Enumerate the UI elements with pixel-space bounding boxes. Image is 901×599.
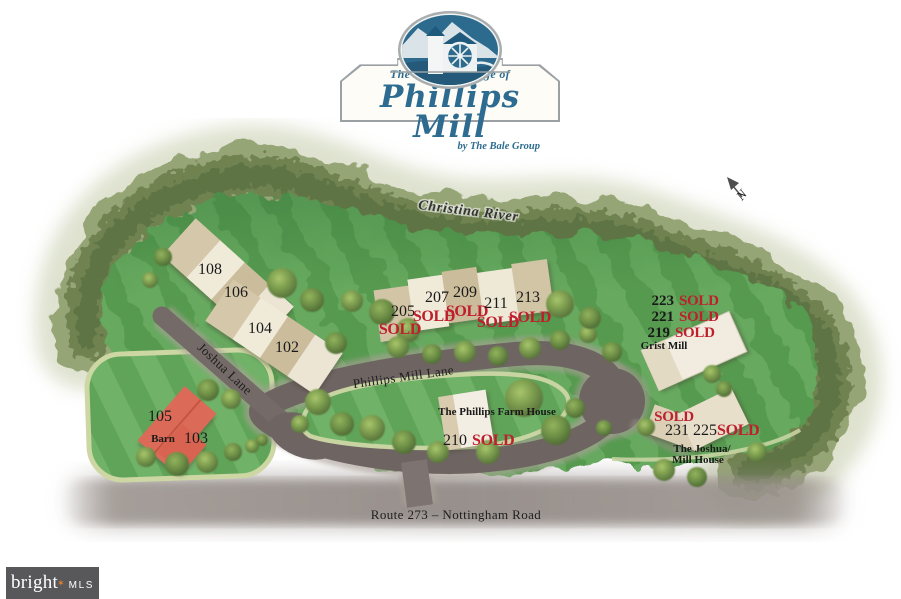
tree bbox=[341, 290, 363, 312]
tree bbox=[602, 342, 622, 362]
lot-219-label: 219 bbox=[648, 325, 671, 341]
tree bbox=[488, 346, 508, 366]
tree bbox=[454, 341, 476, 363]
lot-205-label: 205 bbox=[391, 303, 415, 320]
brightmls-watermark: bright✶ MLS bbox=[6, 567, 99, 599]
logo: The Historic Village of Phillips Mill by… bbox=[340, 6, 560, 124]
lot-213-sold-label: SOLD bbox=[509, 309, 551, 326]
tree bbox=[305, 389, 331, 415]
tree bbox=[330, 412, 354, 436]
tree bbox=[196, 451, 218, 473]
tree bbox=[747, 442, 767, 462]
lot-213-label: 213 bbox=[516, 289, 540, 306]
tree bbox=[267, 268, 297, 298]
tree bbox=[165, 452, 189, 476]
lot-104-label: 104 bbox=[248, 320, 272, 337]
lot-211-label: 211 bbox=[484, 295, 507, 312]
tree bbox=[703, 365, 721, 383]
star-icon: ✶ bbox=[57, 578, 65, 589]
lot-231-label: 231 bbox=[665, 422, 689, 439]
tree bbox=[716, 381, 732, 397]
tree bbox=[687, 467, 707, 487]
barn-label: Barn bbox=[151, 433, 175, 445]
lot-225-sold-label: SOLD bbox=[717, 422, 759, 439]
tree bbox=[550, 330, 570, 350]
grist-mill-label: Grist Mill bbox=[641, 340, 688, 352]
tree bbox=[359, 415, 385, 441]
tree bbox=[541, 415, 571, 445]
tree bbox=[136, 447, 156, 467]
mill-emblem-icon bbox=[390, 8, 510, 94]
lot-102-label: 102 bbox=[275, 339, 299, 356]
lot-210-sold-label: SOLD bbox=[472, 432, 514, 449]
site-plan-page: Christina River N 108 106 104 102 205 SO… bbox=[0, 0, 901, 599]
tree bbox=[422, 344, 442, 364]
lot-221-label: 221 bbox=[652, 309, 675, 325]
lot-223-sold-label: SOLD bbox=[679, 293, 719, 309]
entrance-road bbox=[414, 461, 420, 506]
north-arrow-icon: N bbox=[727, 177, 751, 204]
tree bbox=[221, 389, 241, 409]
tree bbox=[519, 337, 541, 359]
tree bbox=[256, 434, 268, 446]
lot-225-label: 225 bbox=[693, 422, 717, 439]
lot-106-label: 106 bbox=[224, 284, 248, 301]
lot-209-label: 209 bbox=[453, 284, 477, 301]
tree bbox=[197, 379, 219, 401]
tree bbox=[596, 420, 612, 436]
lot-223-label: 223 bbox=[652, 293, 675, 309]
tree bbox=[142, 272, 158, 288]
lot-103-label: 103 bbox=[184, 430, 208, 447]
joshua-mill-house-label-line2: Mill House bbox=[672, 454, 724, 466]
lot-210-label: 210 bbox=[443, 432, 467, 449]
brightmls-brand: bright bbox=[11, 572, 58, 594]
tree bbox=[154, 248, 172, 266]
farm-house-label: The Phillips Farm House bbox=[438, 406, 556, 418]
tree bbox=[224, 443, 242, 461]
tree bbox=[325, 332, 347, 354]
tree bbox=[291, 415, 309, 433]
lot-219-sold-label: SOLD bbox=[675, 325, 715, 341]
lot-105-label: 105 bbox=[148, 408, 172, 425]
tree bbox=[392, 430, 416, 454]
route-273-label: Route 273 – Nottingham Road bbox=[371, 507, 541, 522]
lot-221-sold-label: SOLD bbox=[679, 309, 719, 325]
tree bbox=[387, 336, 409, 358]
tree bbox=[637, 418, 655, 436]
tree bbox=[300, 288, 324, 312]
brightmls-suffix: MLS bbox=[69, 580, 94, 591]
tree bbox=[565, 398, 585, 418]
lot-108-label: 108 bbox=[198, 261, 222, 278]
tree bbox=[579, 307, 601, 329]
